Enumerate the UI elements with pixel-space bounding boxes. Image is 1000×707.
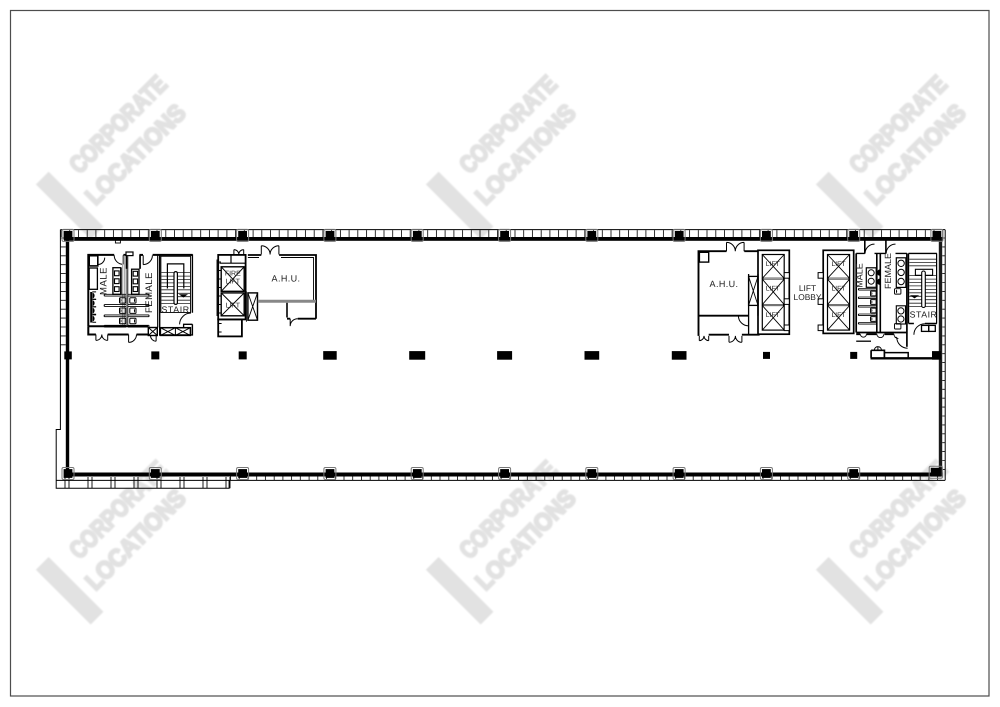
svg-text:FIRE: FIRE (225, 270, 241, 277)
svg-text:MALE: MALE (99, 267, 110, 295)
svg-text:LIFT: LIFT (766, 261, 780, 268)
svg-text:FEMALE: FEMALE (144, 272, 155, 313)
svg-text:LIFT: LIFT (832, 286, 846, 293)
svg-text:LIFT: LIFT (832, 261, 846, 268)
svg-text:A.H.U.: A.H.U. (272, 274, 301, 284)
svg-text:LIFT: LIFT (226, 279, 241, 286)
svg-text:A.H.U.: A.H.U. (710, 279, 739, 289)
svg-text:LIFT: LIFT (766, 312, 780, 319)
svg-text:STAIR: STAIR (161, 305, 189, 315)
svg-text:FEMALE: FEMALE (883, 253, 893, 289)
svg-text:LOBBY: LOBBY (794, 292, 822, 302)
svg-text:LIFT: LIFT (226, 302, 241, 309)
svg-text:LIFT: LIFT (766, 286, 780, 293)
svg-text:STAIR: STAIR (910, 309, 938, 319)
svg-text:MALE: MALE (855, 263, 865, 288)
svg-text:LIFT: LIFT (832, 312, 846, 319)
